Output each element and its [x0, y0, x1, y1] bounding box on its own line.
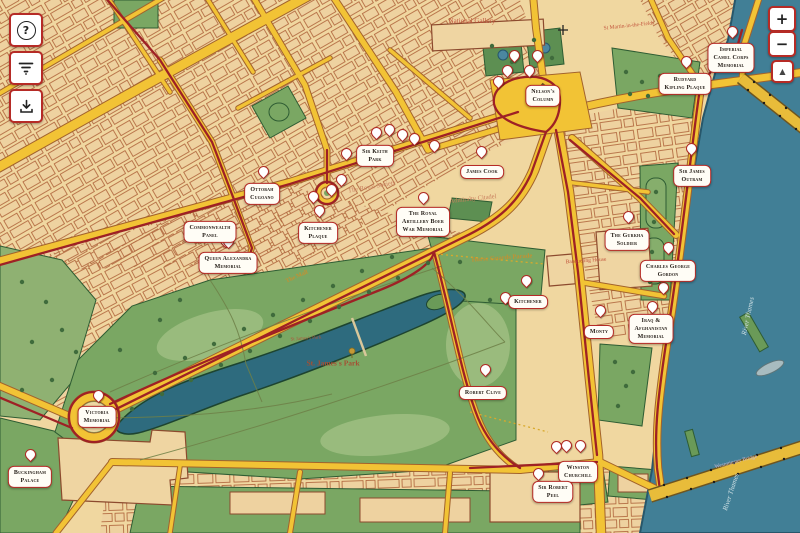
- poi-label-commonwealth-panel[interactable]: Commonwealth Panel: [183, 221, 236, 243]
- poi-label-james-cook[interactable]: James Cook: [460, 165, 504, 179]
- help-icon: ?: [17, 21, 36, 40]
- poi-label-sir-robert-peel[interactable]: Sir Robert Peel: [532, 481, 573, 503]
- poi-label-iraq-afghanistan-memorial[interactable]: Iraq & Afghanistan Memorial: [629, 314, 674, 344]
- filter-icon: [18, 61, 34, 75]
- poi-label-rudyard-kipling-plaque[interactable]: Rudyard Kipling Plaque: [658, 73, 711, 95]
- poi-label-sir-james-outram[interactable]: Sir James Outram: [673, 165, 711, 187]
- poi-label-nelsons-column[interactable]: Nelson's Column: [525, 85, 560, 107]
- poi-label-the-gurkha-soldier[interactable]: The Gurkha Soldier: [605, 229, 650, 251]
- poi-label-ottobah-cugoano[interactable]: Ottobah Cugoano: [244, 183, 280, 205]
- poi-label-royal-artillery-boer-war-memorial[interactable]: The Royal Artillery Boer War Memorial: [396, 207, 450, 237]
- poi-label-kitchener-plaque[interactable]: Kitchener Plaque: [298, 222, 338, 244]
- poi-label-monty[interactable]: Monty: [584, 325, 614, 339]
- poi-label-robert-clive[interactable]: Robert Clive: [459, 386, 507, 400]
- poi-label-sir-keith-park[interactable]: Sir Keith Park: [356, 145, 394, 167]
- poi-label-queen-alexandra-memorial[interactable]: Queen Alexandra Memorial: [199, 252, 258, 274]
- memorial-map: National GallerySt Martin-in-the-FieldsT…: [0, 0, 800, 533]
- download-icon: [19, 99, 34, 114]
- poi-label-victoria-memorial[interactable]: Victoria Memorial: [78, 406, 117, 428]
- help-button[interactable]: ?: [9, 13, 43, 47]
- download-button[interactable]: [9, 89, 43, 123]
- zoom-in-button[interactable]: +: [768, 6, 796, 32]
- poi-label-charles-george-gordon[interactable]: Charles George Gordon: [640, 260, 696, 282]
- poi-label-winston-churchill[interactable]: Winston Churchill: [558, 461, 598, 483]
- poi-label-kitchener[interactable]: Kitchener: [508, 295, 548, 309]
- locate-button[interactable]: ▲: [771, 60, 794, 83]
- poi-label-imperial-camel-corps-memorial[interactable]: Imperial Camel Corps Memorial: [707, 43, 754, 73]
- filter-button[interactable]: [9, 51, 43, 85]
- poi-label-buckingham-palace[interactable]: Buckingham Palace: [8, 466, 52, 488]
- zoom-out-button[interactable]: −: [768, 31, 796, 57]
